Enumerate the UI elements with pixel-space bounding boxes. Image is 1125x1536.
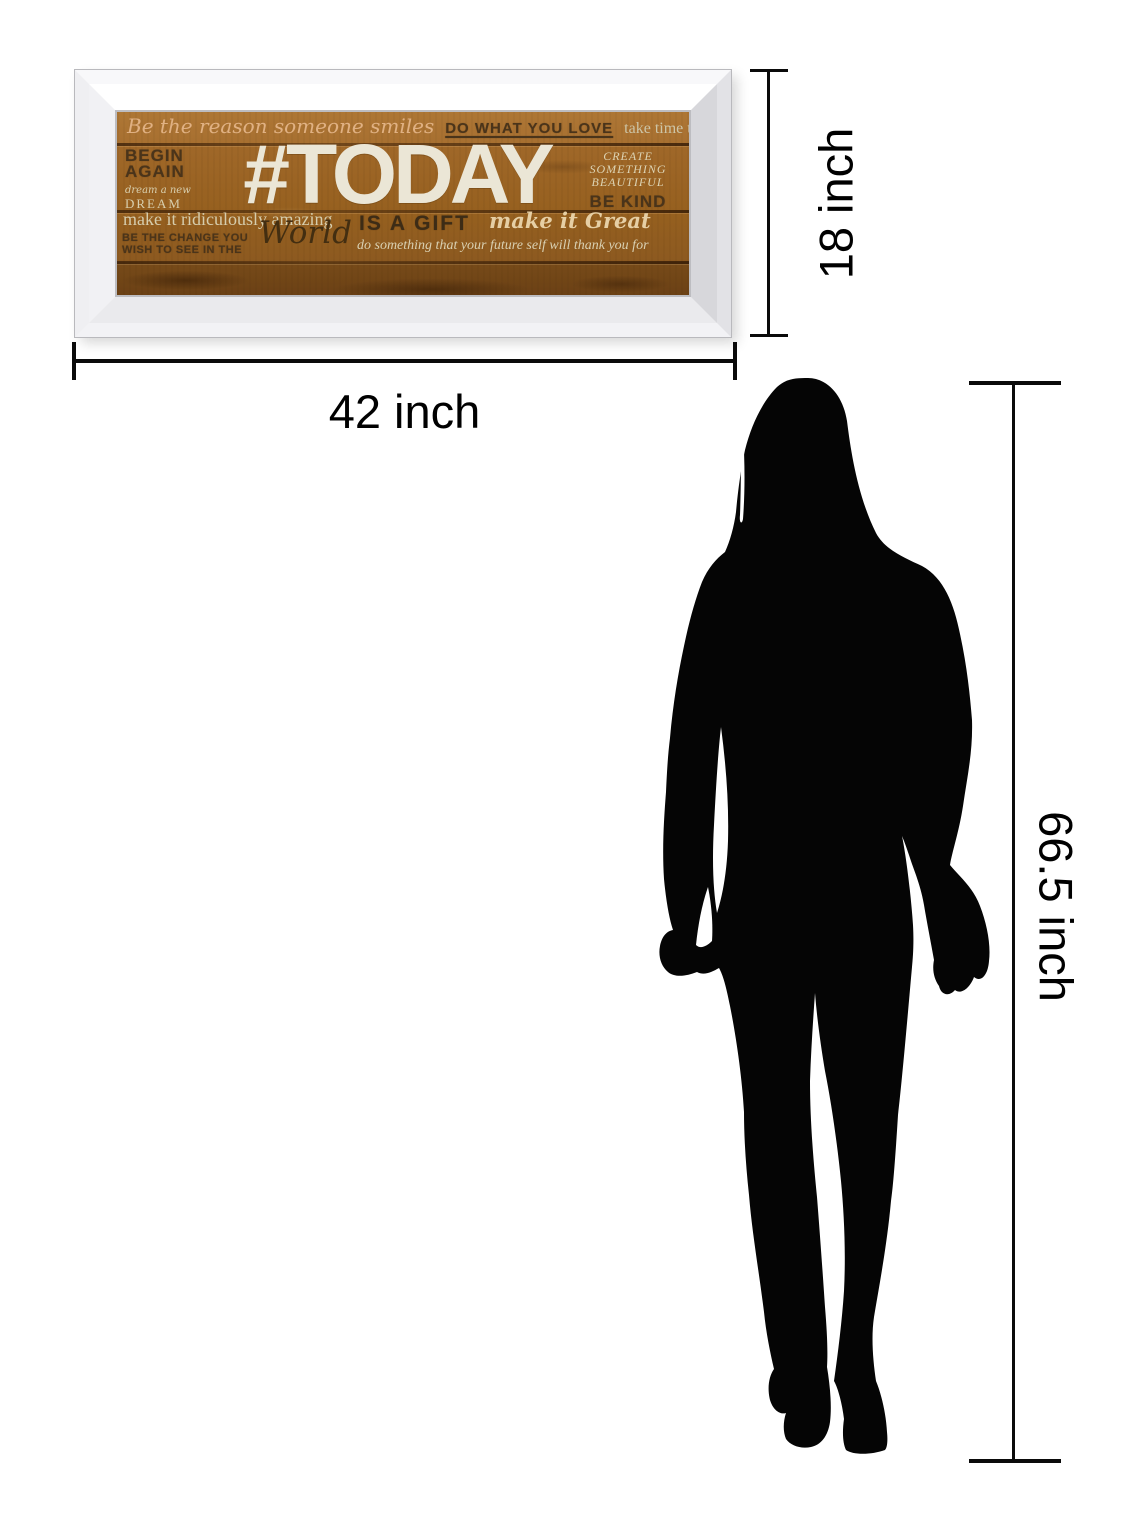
frame-width-label: 42 inch (72, 384, 737, 439)
height-dimension-tick-top (750, 69, 788, 72)
figure-dimension-line (1012, 381, 1015, 1463)
art-plaque: Be the reason someone smiles DO WHAT YOU… (117, 112, 689, 295)
plaque-light-text: take time to care (624, 120, 689, 138)
figure-dimension-tick-top (969, 381, 1061, 385)
height-dimension-tick-bottom (750, 334, 788, 337)
width-dimension-tick-left (72, 342, 76, 380)
figure-height-label: 66.5 inch (1029, 789, 1084, 1025)
framed-art: Be the reason someone smiles DO WHAT YOU… (75, 70, 731, 337)
hair-strand-gap (730, 442, 735, 520)
plaque-change-line2: WISH TO SEE IN THE (122, 244, 248, 256)
plaque-beautiful-text: BEAUTIFUL (571, 176, 685, 189)
figure-dimension-tick-bottom (969, 1459, 1061, 1463)
plank-seam (117, 261, 689, 264)
plaque-change-line1: BE THE CHANGE YOU (122, 232, 248, 244)
plaque-world-script: World (259, 215, 352, 251)
mirror-frame-bevel: Be the reason someone smiles DO WHAT YOU… (89, 84, 717, 323)
plaque-headline: #TODAY (221, 142, 573, 206)
height-dimension-line (767, 69, 770, 337)
product-dimension-diagram: Be the reason someone smiles DO WHAT YOU… (0, 0, 1125, 1536)
width-dimension-line (72, 359, 737, 363)
plaque-great-script: make it Great (489, 208, 651, 233)
plaque-line3: make it ridiculously amazing BE THE CHAN… (117, 211, 689, 261)
woman-silhouette (655, 375, 1000, 1465)
wood-bottom-strip (117, 262, 689, 295)
plaque-again-text: AGAIN (125, 164, 227, 180)
frame-width-dimension (72, 342, 737, 380)
plaque-future-text: do something that your future self will … (357, 238, 649, 254)
plaque-change-text: BE THE CHANGE YOU WISH TO SEE IN THE (122, 232, 248, 256)
plaque-gift-text: IS A GIFT (359, 212, 470, 236)
plaque-dream-script: dream a new (125, 185, 227, 196)
plaque-left-column: BEGIN AGAIN dream a new DREAM (125, 148, 227, 212)
frame-height-label: 18 inch (809, 114, 864, 294)
frame-height-dimension (750, 69, 788, 337)
plaque-right-column: CREATE SOMETHING BEAUTIFUL BE KIND (571, 150, 685, 212)
